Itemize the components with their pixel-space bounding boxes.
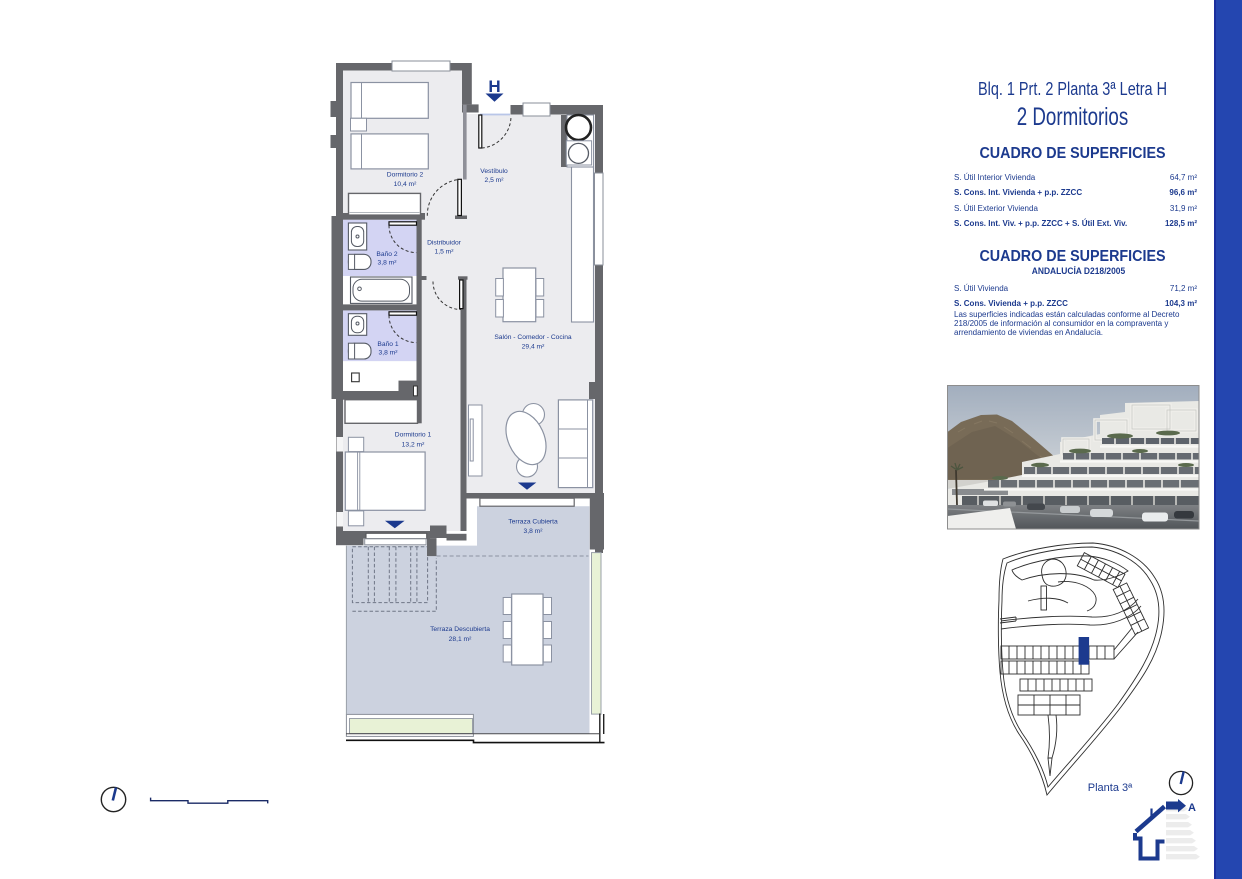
svg-text:Dormitorio 2: Dormitorio 2 [387, 172, 424, 179]
svg-text:3,8 m²: 3,8 m² [378, 260, 398, 267]
svg-text:29,4 m²: 29,4 m² [522, 344, 545, 351]
svg-text:28,1 m²: 28,1 m² [449, 636, 472, 643]
svg-text:Dormitorio 1: Dormitorio 1 [395, 432, 432, 439]
svg-text:Baño 2: Baño 2 [376, 251, 397, 258]
svg-text:3,8 m²: 3,8 m² [379, 350, 399, 357]
svg-text:10,4 m²: 10,4 m² [394, 181, 417, 188]
svg-text:3,8 m²: 3,8 m² [524, 528, 544, 535]
svg-text:Distribuidor: Distribuidor [427, 240, 462, 247]
svg-text:2,5 m²: 2,5 m² [485, 177, 505, 184]
svg-text:Terraza Cubierta: Terraza Cubierta [508, 519, 558, 526]
svg-text:Salón - Comedor - Cocina: Salón - Comedor - Cocina [494, 334, 572, 341]
svg-text:Vestíbulo: Vestíbulo [480, 168, 508, 175]
svg-text:A: A [1188, 802, 1196, 814]
svg-text:H: H [488, 77, 500, 96]
svg-text:13,2 m²: 13,2 m² [402, 442, 425, 449]
svg-text:1,5 m²: 1,5 m² [435, 249, 455, 256]
svg-text:Terraza Descubierta: Terraza Descubierta [430, 626, 490, 633]
svg-text:Baño 1: Baño 1 [377, 341, 398, 348]
